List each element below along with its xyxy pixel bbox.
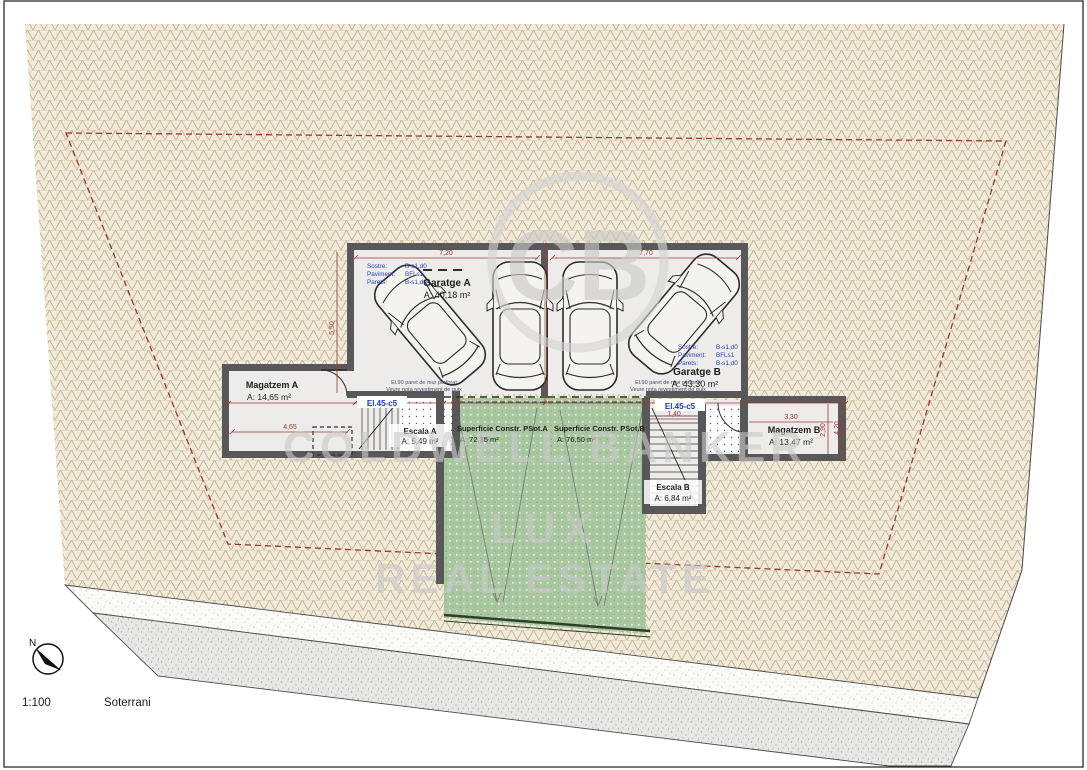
wall-note-b-line1: El.90 paret de mur perforat <box>635 380 701 386</box>
fin-b-sostre-label: Sostre: <box>678 344 698 351</box>
dim-garatge-a-depth: 5,50 <box>329 321 336 335</box>
garatge-b-name: Garatge B <box>673 367 721 378</box>
fin-b-paviment-label: Paviment: <box>678 352 706 359</box>
magatzem-a-name: Magatzem A <box>246 380 299 390</box>
fin-b-paviment-value: BFLs1 <box>716 352 735 359</box>
north-label: N <box>29 638 36 649</box>
fin-b-sostre-value: B-s1,d0 <box>716 344 738 351</box>
escala-b-name: Escala B <box>656 483 690 492</box>
scale-label: 1:100 <box>22 697 51 709</box>
fin-b-parets-label: Parets: <box>678 360 698 367</box>
lintel-b-label: El.45-c5 <box>665 402 696 411</box>
fin-a-sostre-label: Sostre: <box>367 263 387 270</box>
dim-escala-b-width: 1,40 <box>667 411 681 418</box>
escala-b-area: A: 6,84 m² <box>655 494 692 503</box>
garatge-a-area: A: 40,18 m² <box>424 290 471 300</box>
fin-a-paviment-value: BFLs1 <box>405 271 424 278</box>
plan-canvas: Garatge A A: 40,18 m² Garatge B A: 43,30… <box>0 0 1087 770</box>
dim-magatzem-b-depth-1: 2,90 <box>820 423 827 437</box>
wall-note-a-line2: Veure nota revestiment de guix <box>386 387 462 393</box>
watermark-brand-line3: REAL ESTATE <box>375 555 715 602</box>
garatge-a-name: Garatge A <box>423 278 470 289</box>
watermark-brand-line2: LUX <box>491 505 599 552</box>
dim-magatzem-b-depth-2: 4,20 <box>834 421 841 435</box>
wall-note-b-line2: Veure nota revestiment de guix <box>630 387 706 393</box>
floor-plan-page: Garatge A A: 40,18 m² Garatge B A: 43,30… <box>0 0 1087 770</box>
watermark-brand-line1: COLDWELL BANKER <box>283 423 807 472</box>
fin-a-parets-value: B-s1,d0 <box>405 279 427 286</box>
fin-b-parets-value: B-s1,d0 <box>716 360 738 367</box>
fin-a-parets-label: Parets: <box>367 279 387 286</box>
fin-a-paviment-label: Paviment: <box>367 271 395 278</box>
watermark-monogram: CB <box>506 210 650 322</box>
dim-magatzem-b-width: 3,30 <box>784 414 798 421</box>
dim-garatge-a-width: 7,20 <box>439 250 453 257</box>
lintel-a-label: El.45-c5 <box>367 399 398 408</box>
fin-a-sostre-value: B-s1,d0 <box>405 263 427 270</box>
magatzem-a-area: A: 14,65 m² <box>247 392 291 402</box>
plan-name-label: Soterrani <box>104 697 151 709</box>
wall-note-a-line1: El.90 paret de mur perforat <box>391 380 457 386</box>
